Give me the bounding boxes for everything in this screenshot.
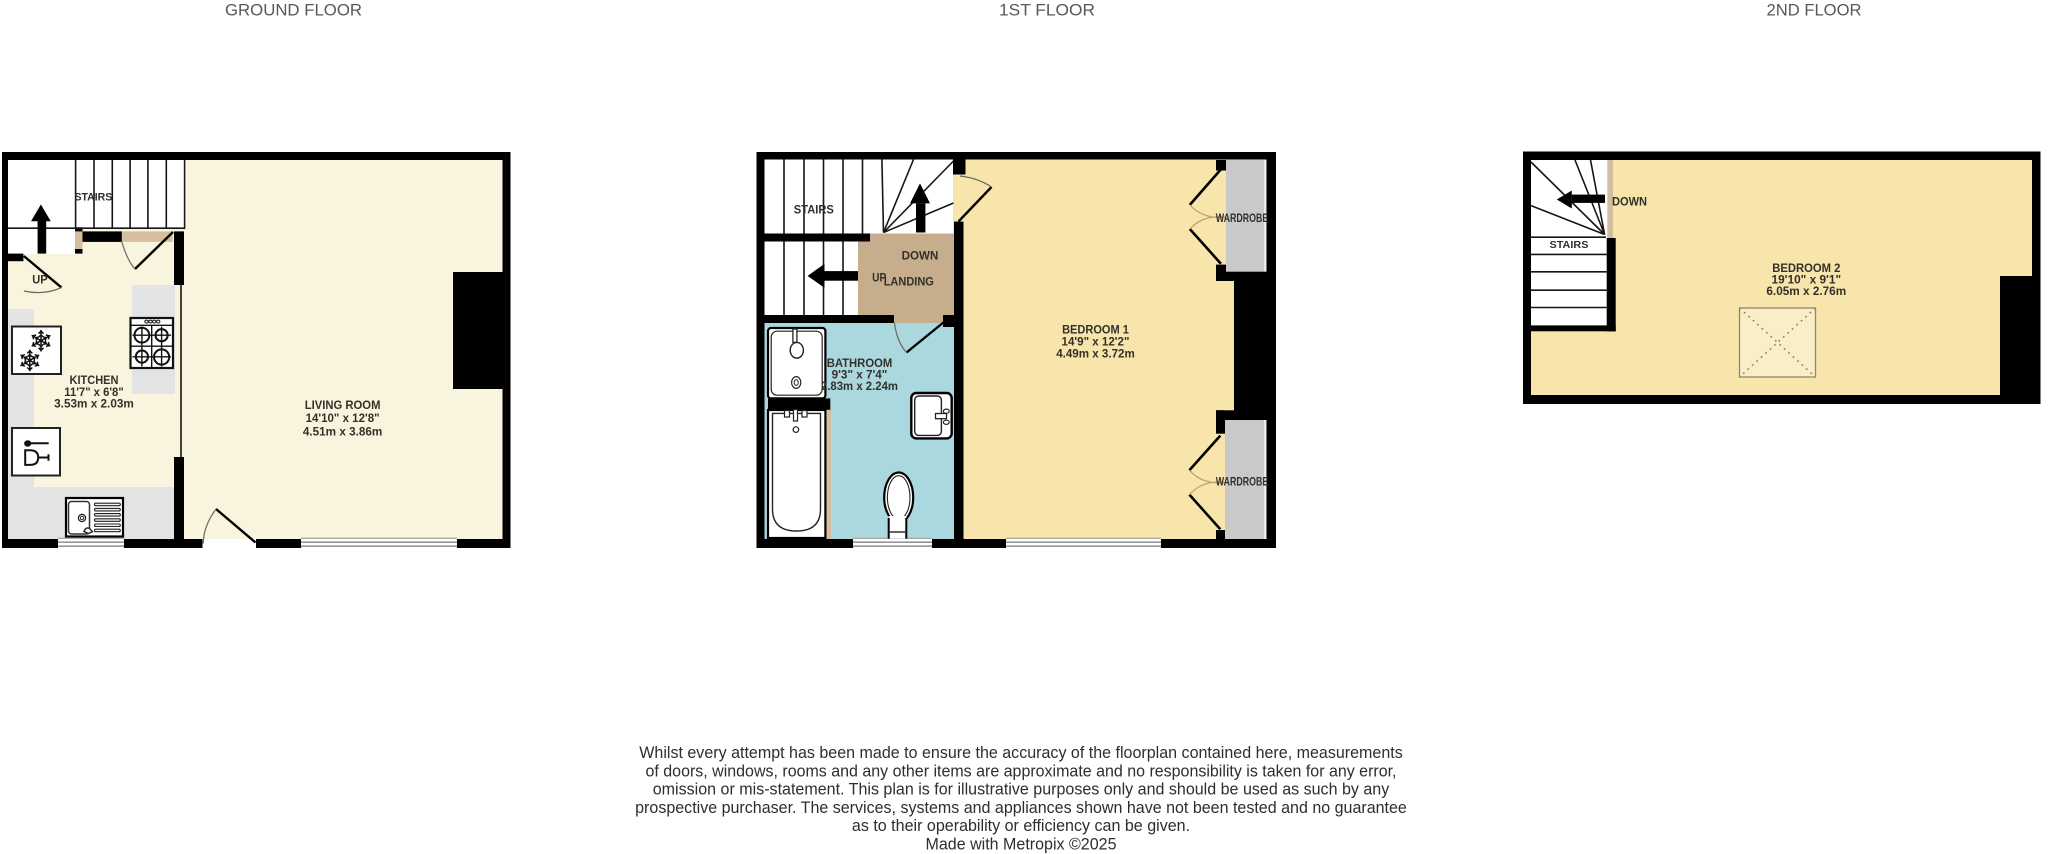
- svg-text:WARDROBE: WARDROBE: [1216, 211, 1269, 225]
- svg-text:2.83m x 2.24m: 2.83m x 2.24m: [821, 379, 898, 393]
- svg-text:STAIRS: STAIRS: [794, 203, 834, 217]
- svg-text:omission or mis-statement. Thi: omission or mis-statement. This plan is …: [653, 780, 1390, 799]
- svg-text:DOWN: DOWN: [1612, 195, 1647, 209]
- svg-text:2ND FLOOR: 2ND FLOOR: [1767, 2, 1862, 20]
- svg-text:6.05m x 2.76m: 6.05m x 2.76m: [1766, 284, 1846, 298]
- svg-text:GROUND FLOOR: GROUND FLOOR: [225, 2, 362, 20]
- svg-text:14'10" x 12'8": 14'10" x 12'8": [306, 411, 380, 425]
- svg-text:LIVING ROOM: LIVING ROOM: [305, 398, 381, 412]
- svg-text:LANDING: LANDING: [884, 274, 934, 288]
- svg-text:3.53m x 2.03m: 3.53m x 2.03m: [54, 397, 134, 411]
- svg-text:STAIRS: STAIRS: [75, 192, 113, 204]
- svg-text:WARDROBE: WARDROBE: [1216, 474, 1269, 488]
- svg-text:4.49m x 3.72m: 4.49m x 3.72m: [1056, 347, 1135, 361]
- svg-text:1ST FLOOR: 1ST FLOOR: [999, 2, 1095, 20]
- svg-text:of doors, windows, rooms and a: of doors, windows, rooms and any other i…: [646, 761, 1397, 780]
- svg-text:STAIRS: STAIRS: [1550, 239, 1589, 251]
- svg-text:prospective purchaser. The ser: prospective purchaser. The services, sys…: [635, 798, 1407, 817]
- svg-text:4.51m x 3.86m: 4.51m x 3.86m: [303, 424, 383, 438]
- svg-text:UP: UP: [32, 275, 48, 287]
- svg-text:as to their operability or eff: as to their operability or efficiency ca…: [852, 816, 1190, 835]
- svg-text:Whilst every attempt has been: Whilst every attempt has been made to en…: [639, 743, 1403, 762]
- svg-text:Made with Metropix ©2025: Made with Metropix ©2025: [926, 835, 1117, 854]
- svg-text:DOWN: DOWN: [902, 249, 939, 263]
